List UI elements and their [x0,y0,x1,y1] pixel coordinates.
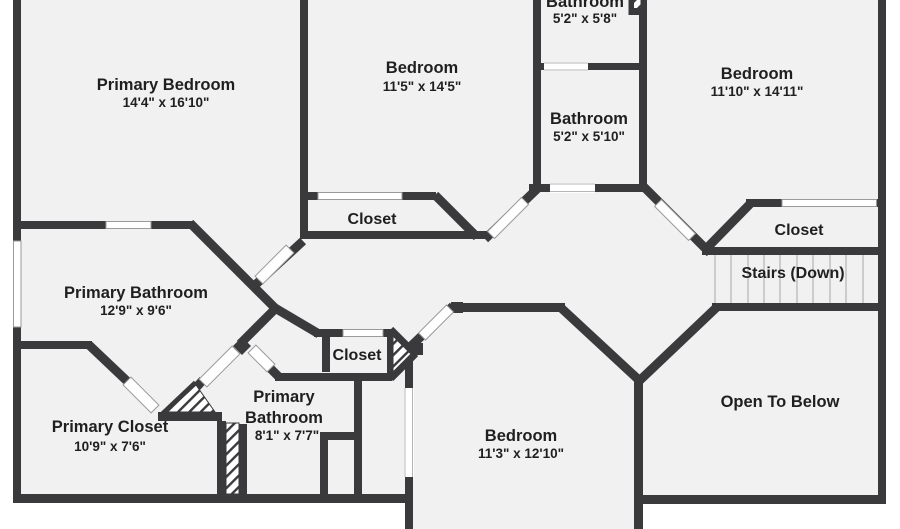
svg-text:11'10" x 14'11": 11'10" x 14'11" [711,84,804,99]
svg-text:11'3" x 12'10": 11'3" x 12'10" [478,446,564,461]
svg-text:12'9" x 9'6": 12'9" x 9'6" [100,303,172,318]
svg-text:Primary Bedroom: Primary Bedroom [97,76,235,94]
svg-text:Primary Closet: Primary Closet [52,418,169,436]
svg-text:Bathroom: Bathroom [245,409,323,427]
svg-text:Primary: Primary [253,388,315,406]
svg-text:8'1" x 7'7": 8'1" x 7'7" [255,428,319,443]
svg-text:10'9" x 7'6": 10'9" x 7'6" [74,439,146,454]
svg-text:Closet: Closet [333,347,383,364]
svg-text:Closet: Closet [775,222,825,239]
svg-text:Bedroom: Bedroom [485,427,557,445]
svg-text:Bathroom: Bathroom [546,0,624,11]
svg-text:Bathroom: Bathroom [550,110,628,128]
svg-text:14'4" x 16'10": 14'4" x 16'10" [123,95,210,110]
svg-text:Stairs (Down): Stairs (Down) [741,265,844,282]
svg-text:5'2" x 5'10": 5'2" x 5'10" [553,129,625,144]
svg-text:Bedroom: Bedroom [721,65,793,83]
svg-text:5'2" x 5'8": 5'2" x 5'8" [553,11,617,26]
svg-text:Closet: Closet [348,211,398,228]
svg-text:Bedroom: Bedroom [386,59,458,77]
svg-text:Primary Bathroom: Primary Bathroom [64,284,208,302]
svg-text:11'5" x 14'5": 11'5" x 14'5" [383,79,462,94]
svg-text:Open To Below: Open To Below [721,393,840,411]
